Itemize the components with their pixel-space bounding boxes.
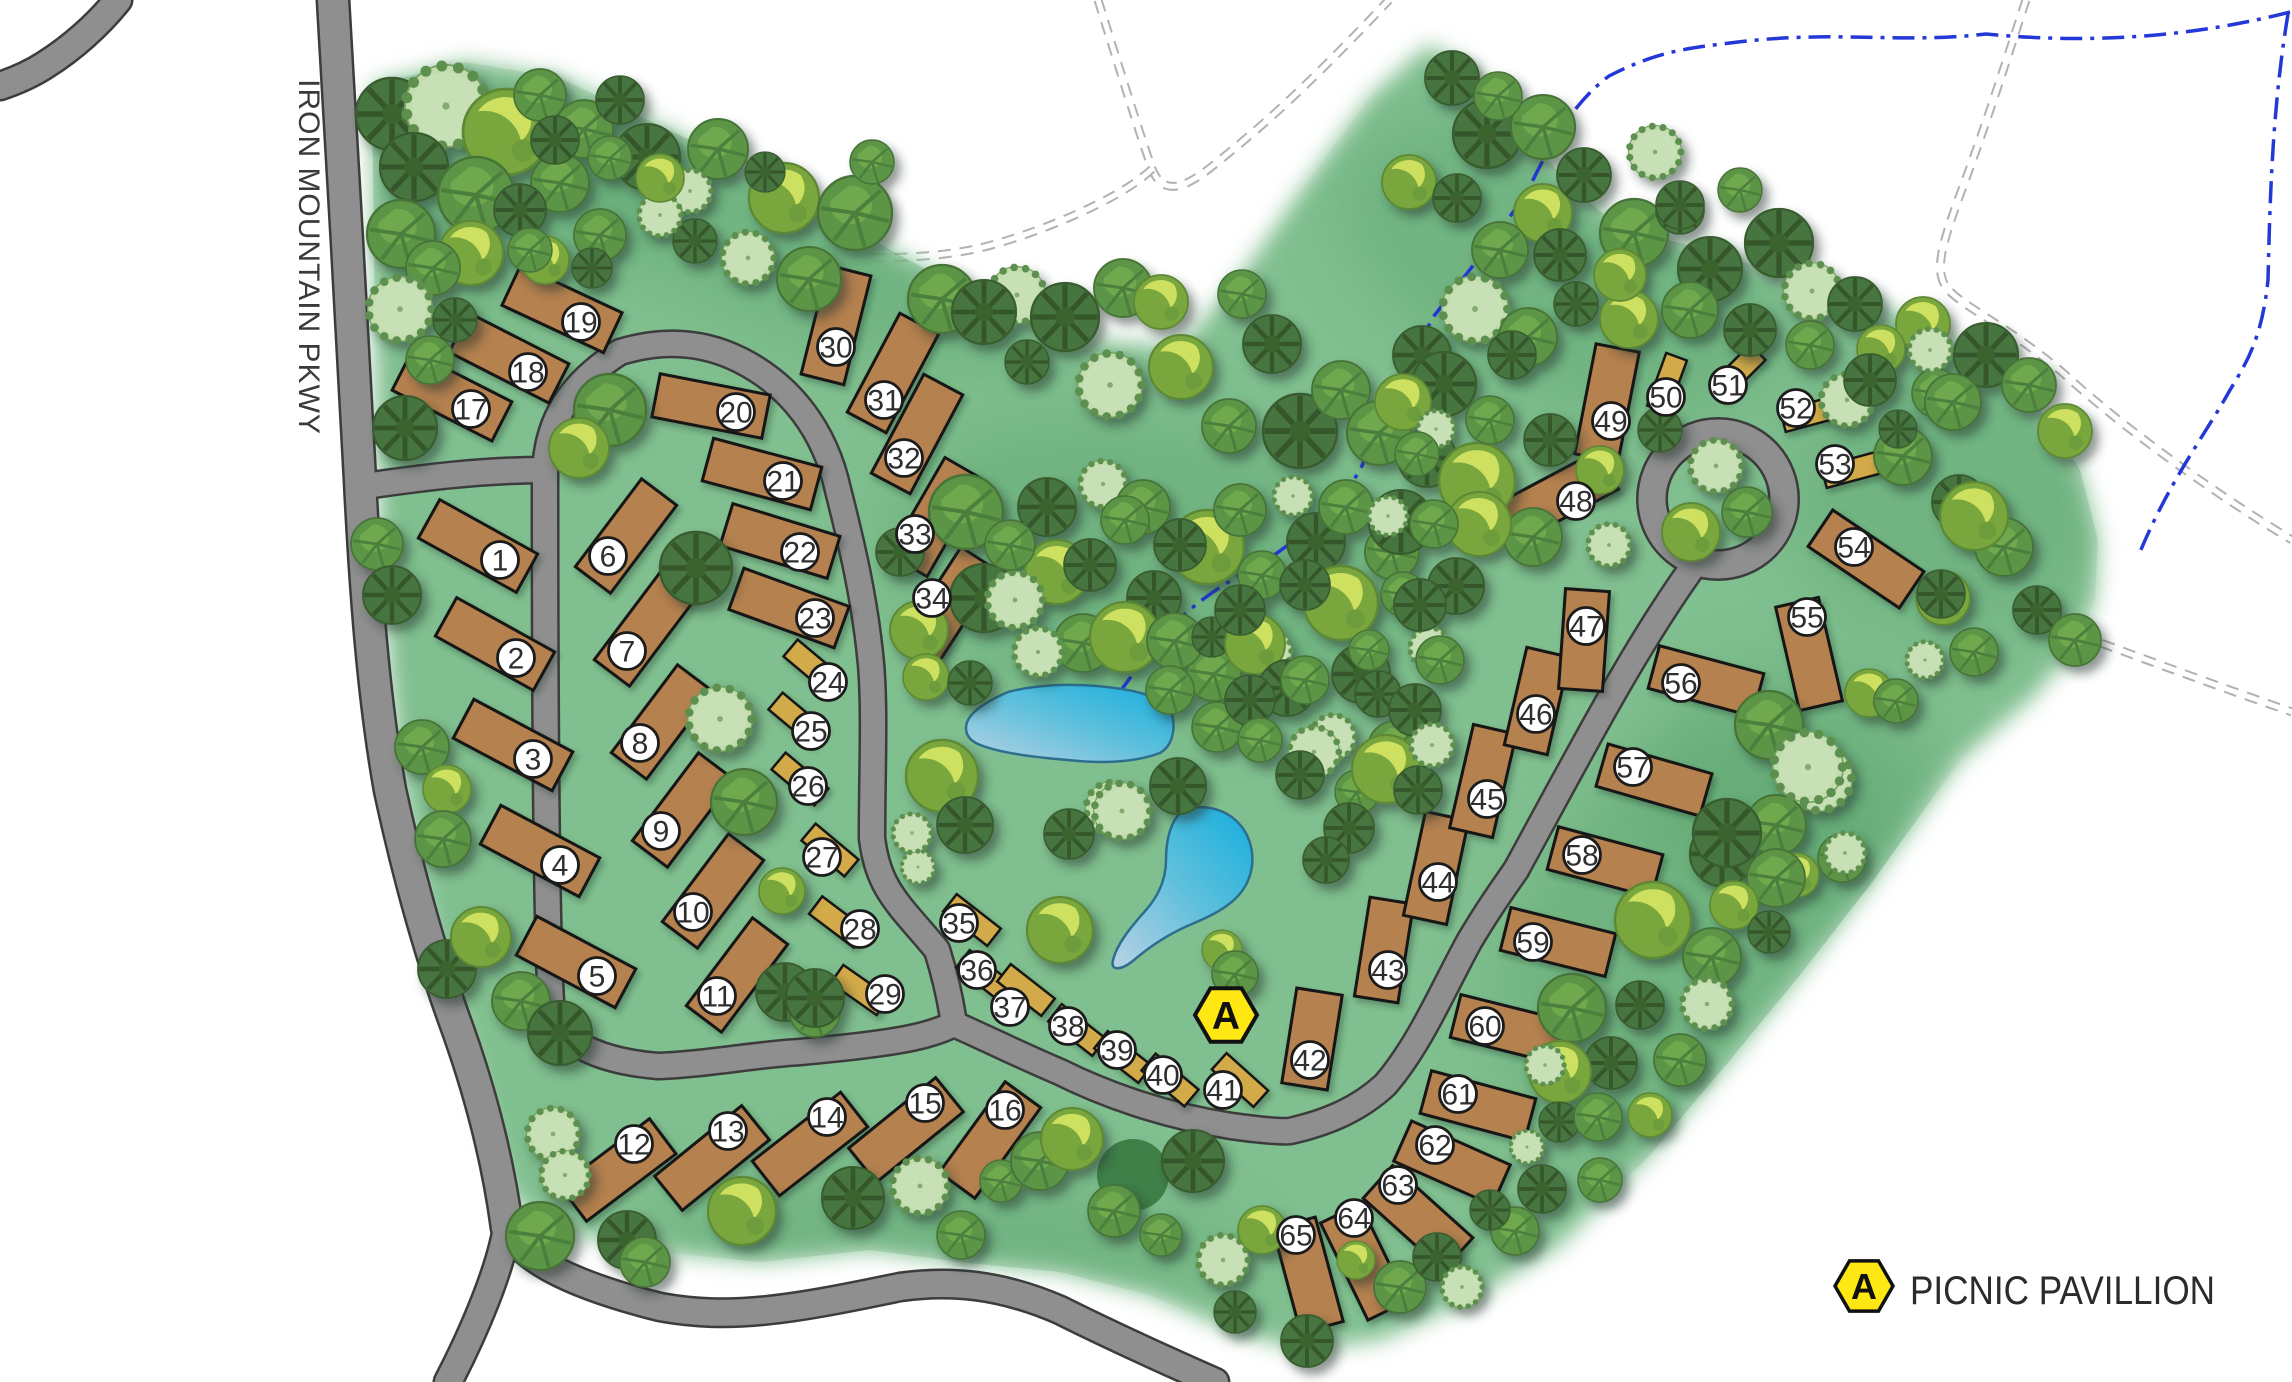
svg-text:41: 41	[1206, 1075, 1239, 1108]
svg-text:56: 56	[1664, 668, 1697, 701]
svg-text:36: 36	[960, 955, 993, 988]
svg-text:65: 65	[1279, 1220, 1312, 1253]
svg-text:26: 26	[791, 771, 824, 804]
svg-text:64: 64	[1337, 1203, 1370, 1236]
svg-text:54: 54	[1837, 532, 1870, 565]
svg-text:57: 57	[1616, 752, 1649, 785]
svg-text:37: 37	[993, 992, 1026, 1025]
svg-text:33: 33	[898, 519, 931, 552]
svg-text:10: 10	[676, 897, 709, 930]
svg-text:40: 40	[1146, 1060, 1179, 1093]
svg-text:23: 23	[798, 603, 831, 636]
svg-text:52: 52	[1779, 393, 1812, 426]
svg-text:16: 16	[988, 1095, 1021, 1128]
svg-text:6: 6	[600, 541, 617, 574]
svg-text:28: 28	[843, 914, 876, 947]
svg-text:15: 15	[908, 1088, 941, 1121]
svg-text:A: A	[1212, 995, 1240, 1038]
svg-text:47: 47	[1569, 611, 1602, 644]
svg-text:55: 55	[1790, 602, 1823, 635]
svg-text:51: 51	[1711, 370, 1744, 403]
svg-text:13: 13	[711, 1116, 744, 1149]
svg-text:29: 29	[868, 979, 901, 1012]
svg-text:31: 31	[867, 385, 900, 418]
svg-text:32: 32	[887, 443, 920, 476]
svg-text:12: 12	[617, 1129, 650, 1162]
svg-text:45: 45	[1470, 784, 1503, 817]
svg-text:50: 50	[1649, 382, 1682, 415]
svg-text:61: 61	[1441, 1079, 1474, 1112]
svg-text:A: A	[1851, 1266, 1877, 1307]
svg-text:17: 17	[454, 394, 487, 427]
svg-text:20: 20	[719, 397, 752, 430]
svg-text:53: 53	[1818, 449, 1851, 482]
svg-text:38: 38	[1051, 1011, 1084, 1044]
svg-text:18: 18	[511, 357, 544, 390]
svg-text:42: 42	[1293, 1045, 1326, 1078]
svg-text:49: 49	[1594, 406, 1627, 439]
svg-text:44: 44	[1421, 867, 1454, 900]
svg-text:7: 7	[619, 636, 636, 669]
svg-text:19: 19	[564, 307, 597, 340]
svg-text:43: 43	[1371, 955, 1404, 988]
svg-text:14: 14	[810, 1102, 843, 1135]
svg-text:3: 3	[525, 744, 542, 777]
svg-text:27: 27	[805, 842, 838, 875]
svg-text:9: 9	[653, 816, 670, 849]
svg-text:IRON MOUNTAIN PKWY: IRON MOUNTAIN PKWY	[292, 79, 325, 435]
svg-text:59: 59	[1516, 927, 1549, 960]
svg-text:5: 5	[589, 961, 606, 994]
svg-text:21: 21	[766, 466, 799, 499]
svg-text:25: 25	[794, 716, 827, 749]
svg-text:34: 34	[915, 583, 948, 616]
svg-text:39: 39	[1100, 1035, 1133, 1068]
svg-text:11: 11	[701, 981, 732, 1014]
svg-text:1: 1	[492, 545, 509, 578]
svg-text:2: 2	[508, 643, 525, 676]
svg-text:48: 48	[1559, 486, 1592, 519]
svg-text:46: 46	[1519, 699, 1552, 732]
svg-text:60: 60	[1468, 1011, 1501, 1044]
svg-text:24: 24	[811, 667, 844, 700]
svg-text:4: 4	[552, 850, 569, 883]
svg-text:PICNIC PAVILLION: PICNIC PAVILLION	[1910, 1269, 2215, 1313]
svg-text:22: 22	[783, 537, 816, 570]
svg-text:62: 62	[1418, 1130, 1451, 1163]
svg-text:63: 63	[1381, 1170, 1414, 1203]
svg-text:58: 58	[1565, 840, 1598, 873]
svg-text:30: 30	[819, 332, 852, 365]
svg-text:35: 35	[942, 908, 975, 941]
svg-text:8: 8	[632, 728, 649, 761]
